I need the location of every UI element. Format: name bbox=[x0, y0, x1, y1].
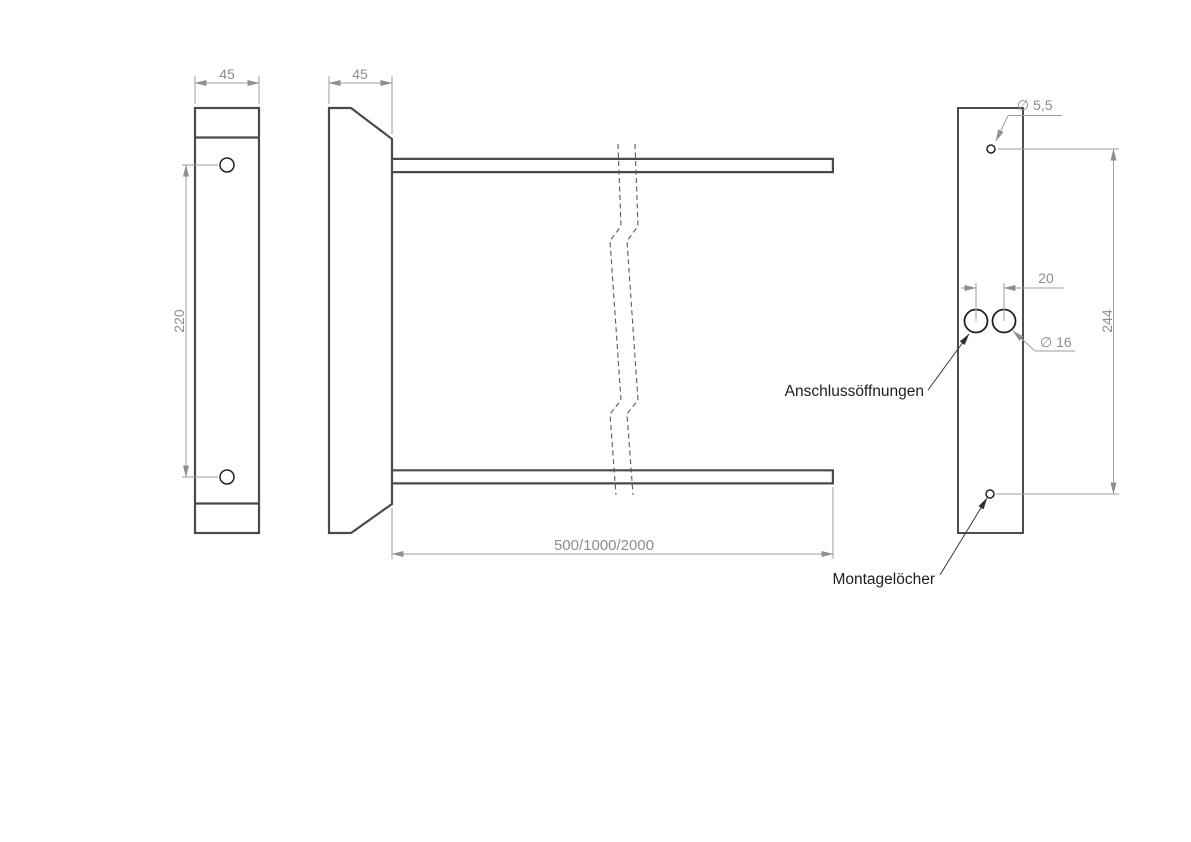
mounting-hole-top bbox=[987, 145, 995, 153]
dim-text-length: 500/1000/2000 bbox=[554, 537, 654, 554]
bottom-rail bbox=[392, 470, 833, 483]
technical-drawing: 45 220 45 500/1000/2000 ∅ 5,5 bbox=[0, 0, 1191, 842]
callout-text-mounting-holes: Montagelöcher bbox=[832, 571, 935, 588]
dim-text-45-left: 45 bbox=[219, 66, 235, 82]
rear-panel-view bbox=[958, 108, 1023, 533]
left-profile-view bbox=[195, 108, 259, 533]
dim-text-45-side: 45 bbox=[352, 66, 368, 82]
dim-text-dia-5-5: ∅ 5,5 bbox=[1017, 97, 1053, 113]
dim-text-244: 244 bbox=[1099, 309, 1115, 333]
side-view bbox=[329, 108, 833, 533]
wall-bar-outline bbox=[329, 108, 392, 533]
dimension-length: 500/1000/2000 bbox=[392, 487, 833, 559]
profile-hole-top bbox=[220, 158, 234, 172]
break-line-right bbox=[627, 144, 638, 495]
dim-text-20: 20 bbox=[1038, 270, 1054, 286]
callout-text-connection-ports: Anschlussöffnungen bbox=[785, 383, 924, 400]
top-rail bbox=[392, 159, 833, 172]
dim-text-220: 220 bbox=[171, 309, 187, 333]
drawing-canvas: 45 220 45 500/1000/2000 ∅ 5,5 bbox=[0, 0, 1191, 842]
dimension-left-width: 45 bbox=[195, 66, 259, 104]
callout-connection-ports: Anschlussöffnungen bbox=[785, 334, 969, 400]
dim-text-dia-16: ∅ 16 bbox=[1040, 334, 1072, 350]
mounting-hole-bottom bbox=[986, 490, 994, 498]
profile-hole-bottom bbox=[220, 470, 234, 484]
break-line-left bbox=[610, 144, 621, 495]
